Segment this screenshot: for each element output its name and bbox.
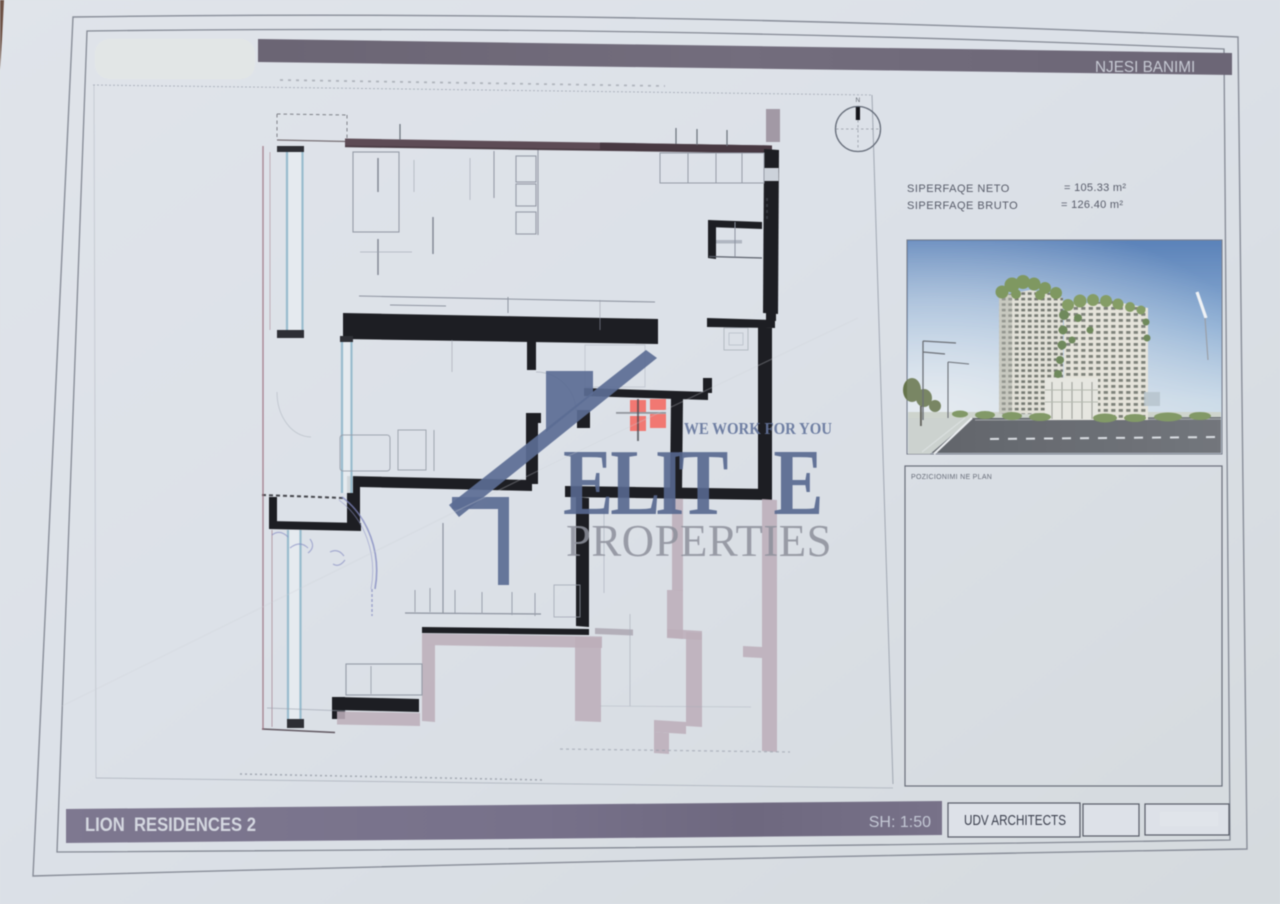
svg-text:NJESI BANIMI: NJESI BANIMI xyxy=(1095,59,1195,76)
svg-text:POZICIONIMI NE PLAN: POZICIONIMI NE PLAN xyxy=(911,474,992,481)
svg-text:LION RESIDENCES 2: LION RESIDENCES 2 xyxy=(85,814,256,836)
svg-text:SIPERFAQE NETO: SIPERFAQE NETO xyxy=(907,183,1010,195)
svg-text:= 126.40 m²: = 126.40 m² xyxy=(1061,199,1123,211)
svg-text:N: N xyxy=(856,97,861,104)
svg-text:SH: 1:50: SH: 1:50 xyxy=(869,814,931,831)
svg-text:SIPERFAQE BRUTO: SIPERFAQE BRUTO xyxy=(907,200,1018,212)
svg-text:= 105.33 m²: = 105.33 m² xyxy=(1064,182,1126,194)
svg-text:UDV ARCHITECTS: UDV ARCHITECTS xyxy=(964,812,1066,829)
svg-text:PROPERTIES: PROPERTIES xyxy=(566,516,832,566)
